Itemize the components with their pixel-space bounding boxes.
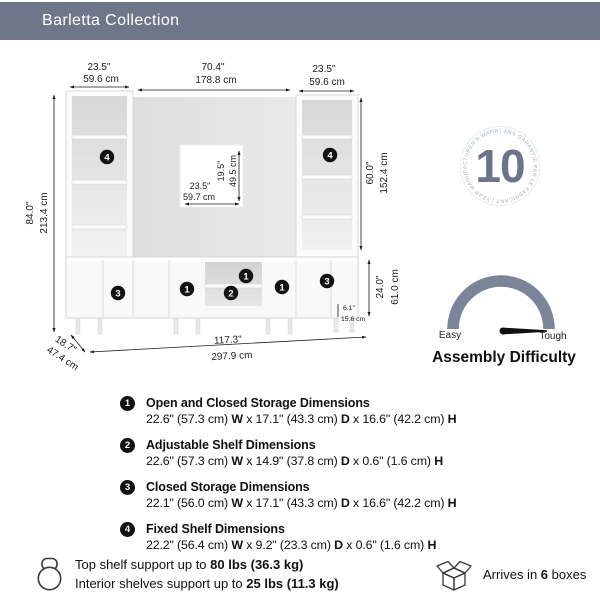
dim-value-cm: 15.6 cm bbox=[341, 316, 366, 323]
assembly-difficulty-gauge: Easy Tough Assembly Difficulty bbox=[432, 281, 576, 366]
spec-item-fixed-shelf: 4 Fixed Shelf Dimensions 22.2" (56.4 cm)… bbox=[120, 521, 456, 553]
depth-label: D bbox=[341, 454, 350, 468]
dim-value-cm: 213.4 cm bbox=[39, 192, 50, 233]
width-label: W bbox=[231, 454, 243, 468]
dim-separator: x bbox=[246, 454, 252, 468]
dim-value-cm: 178.8 cm bbox=[195, 75, 236, 86]
spec-number-badge: 2 bbox=[120, 438, 135, 453]
tower-right-shelf bbox=[302, 215, 352, 219]
marker-open-closed-storage-center: 1 bbox=[239, 269, 253, 283]
entertainment-center-illustration bbox=[66, 91, 358, 334]
dim-width: 22.1" (56.0 cm) bbox=[146, 496, 228, 510]
console-top-edge bbox=[67, 258, 358, 262]
spec-item-open-closed-storage: 1 Open and Closed Storage Dimensions 22.… bbox=[120, 395, 456, 427]
dim-value-in: 23.5" bbox=[87, 62, 110, 73]
spec-item-closed-storage: 3 Closed Storage Dimensions 22.1" (56.0 … bbox=[120, 479, 456, 511]
width-label: W bbox=[231, 412, 243, 426]
dim-depth: 17.1" (43.3 cm) bbox=[256, 496, 338, 510]
interior-shelf-support-line: Interior shelves support up to 25 lbs (1… bbox=[75, 574, 339, 593]
dim-value-cm: 61.0 cm bbox=[390, 269, 401, 305]
marker-open-closed-storage-left: 1 bbox=[180, 282, 194, 296]
dim-value-cm: 59.6 cm bbox=[83, 74, 119, 85]
width-label: W bbox=[231, 538, 243, 552]
depth-label: D bbox=[334, 538, 343, 552]
spec-detail: 22.1" (56.0 cm) W x 17.1" (43.3 cm) D x … bbox=[146, 495, 456, 511]
height-label: H bbox=[448, 496, 457, 510]
tower-left-interior bbox=[72, 96, 127, 257]
width-label: W bbox=[231, 496, 243, 510]
marker-closed-storage-left: 3 bbox=[111, 286, 125, 300]
gauge-arc bbox=[453, 281, 549, 329]
dim-depth: 9.2" (23.3 cm) bbox=[256, 538, 331, 552]
dim-value-cm: 59.7 cm bbox=[183, 192, 215, 202]
dim-depth: 17.1" (43.3 cm) bbox=[256, 412, 338, 426]
dim-value-in: 24.0" bbox=[375, 275, 386, 298]
spec-item-adjustable-shelf: 2 Adjustable Shelf Dimensions 22.6" (57.… bbox=[120, 437, 456, 469]
kettlebell-icon bbox=[36, 556, 64, 592]
warranty-years-number: 10 bbox=[475, 140, 524, 192]
arrives-pre-text: Arrives in bbox=[483, 567, 541, 582]
dim-separator: x bbox=[246, 538, 252, 552]
gauge-easy-label: Easy bbox=[439, 330, 461, 341]
dim-height: 16.6" (42.2 cm) bbox=[362, 412, 444, 426]
dim-value-in: 23.5" bbox=[190, 181, 211, 191]
weight-support-text: Top shelf support up to 80 lbs (36.3 kg)… bbox=[75, 555, 339, 593]
dim-value-cm: 49.5 cm bbox=[228, 155, 238, 187]
spec-detail: 22.2" (56.4 cm) W x 9.2" (23.3 cm) D x 0… bbox=[146, 537, 436, 553]
spec-title: Closed Storage Dimensions bbox=[146, 479, 456, 495]
svg-text:2: 2 bbox=[228, 288, 233, 299]
spec-number-badge: 4 bbox=[120, 522, 135, 537]
dim-separator: x bbox=[353, 496, 359, 510]
console-legs bbox=[76, 318, 354, 334]
dim-total-height: 84.0" 213.4 cm bbox=[25, 95, 54, 332]
dim-width: 22.6" (57.3 cm) bbox=[146, 454, 228, 468]
marker-closed-storage-right: 3 bbox=[320, 274, 334, 288]
dim-depth: 18.7" 47.4 cm bbox=[44, 334, 85, 373]
dim-value-cm: 59.6 cm bbox=[309, 77, 345, 88]
depth-label: D bbox=[341, 412, 350, 426]
dim-width: 22.6" (57.3 cm) bbox=[146, 412, 228, 426]
svg-text:3: 3 bbox=[324, 276, 329, 287]
arrives-box-count: 6 bbox=[541, 567, 548, 582]
dim-value-in: 60.0" bbox=[365, 161, 376, 184]
tower-right-shelf bbox=[302, 175, 352, 179]
product-diagram: 4 4 3 1 1 2 1 3 bbox=[0, 0, 600, 395]
dim-depth: 14.9" (37.8 cm) bbox=[256, 454, 338, 468]
arrives-post-text: boxes bbox=[552, 567, 587, 582]
spec-number-badge: 3 bbox=[120, 480, 135, 495]
dim-tower-right-width: 23.5" 59.6 cm bbox=[299, 64, 354, 91]
dim-width: 22.2" (56.4 cm) bbox=[146, 538, 228, 552]
dim-value-in: 117.3" bbox=[214, 334, 243, 346]
spec-number-badge: 1 bbox=[120, 396, 135, 411]
gauge-title: Assembly Difficulty bbox=[432, 349, 576, 366]
dim-height: 0.6" (1.6 cm) bbox=[362, 454, 431, 468]
support-line2-value: 25 lbs (11.3 kg) bbox=[246, 576, 339, 591]
marker-fixed-shelf-right: 4 bbox=[323, 148, 337, 162]
dim-value-in: 84.0" bbox=[25, 201, 36, 224]
box-icon bbox=[434, 555, 474, 593]
height-label: H bbox=[448, 412, 457, 426]
spec-title: Adjustable Shelf Dimensions bbox=[146, 437, 443, 453]
dim-console-height: 24.0" 61.0 cm bbox=[369, 260, 401, 316]
dim-separator: x bbox=[246, 496, 252, 510]
dim-center-width: 70.4" 178.8 cm bbox=[138, 62, 290, 90]
svg-text:1: 1 bbox=[279, 282, 285, 293]
spec-list: 1 Open and Closed Storage Dimensions 22.… bbox=[120, 395, 456, 563]
tower-left-shelf bbox=[72, 180, 127, 184]
dim-value-in: 70.4" bbox=[201, 62, 224, 73]
dim-height: 16.6" (42.2 cm) bbox=[362, 496, 444, 510]
marker-open-closed-storage-right: 1 bbox=[275, 280, 289, 294]
height-label: H bbox=[434, 454, 443, 468]
spec-title: Open and Closed Storage Dimensions bbox=[146, 395, 456, 411]
dim-separator: x bbox=[353, 454, 359, 468]
dim-separator: x bbox=[246, 412, 252, 426]
spec-detail: 22.6" (57.3 cm) W x 17.1" (43.3 cm) D x … bbox=[146, 411, 456, 427]
dim-value-cm: 297.9 cm bbox=[211, 350, 253, 363]
marker-fixed-shelf-left: 4 bbox=[100, 150, 114, 164]
depth-label: D bbox=[341, 496, 350, 510]
dim-separator: x bbox=[353, 412, 359, 426]
dim-height: 0.6" (1.6 cm) bbox=[356, 538, 425, 552]
tower-left-shelf bbox=[72, 225, 127, 229]
dim-value-in: 23.5" bbox=[312, 64, 335, 75]
svg-text:4: 4 bbox=[104, 152, 110, 163]
svg-text:1: 1 bbox=[184, 284, 190, 295]
dim-separator: x bbox=[346, 538, 352, 552]
height-label: H bbox=[427, 538, 436, 552]
support-line1-value: 80 lbs (36.3 kg) bbox=[210, 557, 303, 572]
spec-title: Fixed Shelf Dimensions bbox=[146, 521, 436, 537]
marker-adjustable-shelf: 2 bbox=[224, 286, 238, 300]
dim-value-cm: 152.4 cm bbox=[379, 152, 390, 193]
tower-right-shelf bbox=[302, 135, 352, 139]
svg-text:4: 4 bbox=[327, 150, 333, 161]
dim-tower-shelf-height: 60.0" 152.4 cm bbox=[361, 98, 390, 250]
tower-left-shelf bbox=[72, 135, 127, 139]
dim-total-width: 117.3" 297.9 cm bbox=[90, 334, 366, 363]
arrives-text: Arrives in 6 boxes bbox=[483, 567, 586, 582]
svg-text:1: 1 bbox=[243, 271, 249, 282]
dim-value-in: 6.1" bbox=[343, 305, 355, 312]
weight-support-note: Top shelf support up to 80 lbs (36.3 kg)… bbox=[36, 555, 339, 593]
svg-text:3: 3 bbox=[115, 288, 120, 299]
top-shelf-support-line: Top shelf support up to 80 lbs (36.3 kg) bbox=[75, 555, 339, 574]
spec-detail: 22.6" (57.3 cm) W x 14.9" (37.8 cm) D x … bbox=[146, 453, 443, 469]
support-line2-text: Interior shelves support up to bbox=[75, 576, 246, 591]
arrives-in-boxes-note: Arrives in 6 boxes bbox=[434, 555, 586, 593]
dim-tower-left-width: 23.5" 59.6 cm bbox=[70, 62, 129, 87]
dim-value-in: 19.5" bbox=[216, 161, 226, 182]
gauge-tough-label: Tough bbox=[539, 331, 566, 342]
support-line1-text: Top shelf support up to bbox=[75, 557, 210, 572]
